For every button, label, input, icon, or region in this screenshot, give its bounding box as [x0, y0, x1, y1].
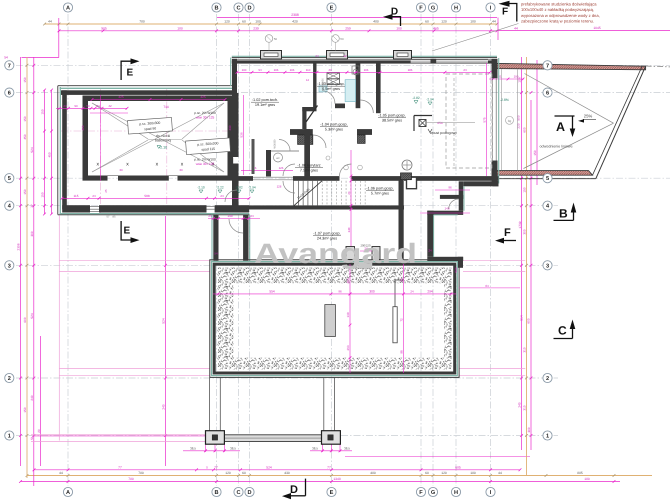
svg-text:450: 450 — [48, 152, 52, 157]
svg-text:B: B — [214, 490, 218, 496]
svg-text:38.5: 38.5 — [312, 447, 318, 451]
svg-text:780: 780 — [139, 20, 145, 24]
svg-text:77: 77 — [118, 466, 122, 470]
svg-text:300: 300 — [30, 231, 34, 236]
svg-text:300: 300 — [369, 290, 375, 294]
svg-text:basenowej: basenowej — [155, 139, 171, 143]
svg-text:885: 885 — [577, 471, 583, 475]
svg-text:480: 480 — [370, 471, 376, 475]
svg-text:94: 94 — [258, 68, 262, 72]
svg-text:180: 180 — [177, 26, 183, 30]
svg-text:24: 24 — [315, 54, 319, 58]
svg-text:425: 425 — [200, 95, 206, 99]
svg-text:1739: 1739 — [518, 221, 522, 228]
svg-text:-2.94: -2.94 — [248, 186, 255, 190]
svg-text:100: 100 — [514, 75, 519, 79]
svg-text:A: A — [66, 6, 70, 12]
svg-text:30: 30 — [119, 168, 123, 172]
svg-text:60: 60 — [242, 471, 246, 475]
svg-text:150: 150 — [23, 407, 27, 412]
svg-text:106: 106 — [364, 68, 369, 72]
svg-text:44: 44 — [59, 471, 63, 475]
svg-text:60: 60 — [425, 20, 429, 24]
svg-text:100: 100 — [242, 68, 247, 72]
svg-text:50: 50 — [340, 37, 344, 41]
svg-text:12: 12 — [306, 78, 310, 82]
svg-text:420: 420 — [81, 125, 85, 130]
svg-text:524: 524 — [30, 147, 34, 152]
svg-text:554: 554 — [269, 290, 275, 294]
svg-text:534: 534 — [454, 267, 458, 272]
svg-text:106: 106 — [290, 68, 295, 72]
svg-text:220: 220 — [517, 123, 521, 128]
svg-text:2308: 2308 — [291, 13, 299, 17]
svg-text:1: 1 — [546, 434, 549, 440]
svg-text:E: E — [127, 68, 134, 79]
svg-text:F: F — [419, 490, 423, 496]
svg-text:100: 100 — [396, 26, 402, 30]
svg-text:H: H — [454, 6, 458, 12]
svg-text:64: 64 — [485, 284, 489, 288]
svg-text:430: 430 — [284, 471, 290, 475]
svg-text:26: 26 — [347, 191, 351, 195]
svg-text:-2.82: -2.82 — [235, 186, 242, 190]
svg-text:24: 24 — [220, 194, 224, 198]
svg-text:180: 180 — [470, 471, 476, 475]
svg-text:240: 240 — [162, 404, 166, 409]
svg-text:120: 120 — [224, 20, 230, 24]
svg-text:24: 24 — [250, 214, 254, 218]
svg-text:-1.04 pom.gosp.: -1.04 pom.gosp. — [320, 122, 347, 126]
svg-text:38.5: 38.5 — [230, 447, 236, 451]
svg-text:150: 150 — [41, 109, 45, 114]
svg-text:2: 2 — [8, 376, 11, 382]
svg-text:98: 98 — [400, 350, 404, 354]
svg-text:wsie 30 i 125: wsie 30 i 125 — [196, 116, 215, 120]
svg-text:96: 96 — [338, 290, 342, 294]
svg-text:E: E — [330, 490, 334, 496]
svg-text:5: 5 — [8, 176, 11, 182]
svg-text:5: 5 — [546, 176, 549, 182]
svg-text:239: 239 — [253, 26, 259, 30]
svg-text:24: 24 — [428, 249, 432, 253]
svg-text:E: E — [330, 6, 334, 12]
svg-text:294: 294 — [427, 290, 433, 294]
svg-text:60: 60 — [242, 20, 246, 24]
svg-text:6: 6 — [546, 91, 549, 97]
svg-text:C: C — [236, 490, 240, 496]
svg-text:654: 654 — [437, 121, 442, 125]
svg-text:W30/30: W30/30 — [274, 139, 277, 148]
svg-text:110: 110 — [306, 68, 311, 72]
svg-text:150: 150 — [533, 150, 537, 155]
svg-text:F: F — [502, 7, 508, 18]
svg-text:500: 500 — [517, 115, 521, 120]
svg-text:128: 128 — [277, 185, 282, 189]
svg-text:-1.05 pom.gosp.: -1.05 pom.gosp. — [378, 114, 405, 118]
svg-text:310: 310 — [523, 347, 527, 352]
svg-text:54: 54 — [4, 56, 8, 60]
svg-text:40: 40 — [328, 68, 332, 72]
svg-text:wc: wc — [276, 156, 280, 160]
svg-text:-1.07 pom.gosp.: -1.07 pom.gosp. — [313, 232, 340, 236]
svg-text:-2.82: -2.82 — [412, 96, 419, 100]
svg-text:-2.10: -2.10 — [197, 186, 204, 190]
svg-text:126: 126 — [279, 166, 284, 170]
svg-text:780: 780 — [138, 471, 144, 475]
svg-text:514: 514 — [520, 315, 524, 320]
svg-text:77: 77 — [30, 204, 34, 208]
svg-text:240: 240 — [347, 227, 351, 232]
svg-text:spad 90: spad 90 — [144, 126, 156, 131]
svg-text:3: 3 — [8, 263, 11, 269]
svg-text:7: 7 — [8, 63, 11, 69]
svg-text:3: 3 — [546, 263, 549, 269]
svg-text:600: 600 — [527, 318, 531, 323]
svg-text:19.1m² gres: 19.1m² gres — [255, 103, 275, 107]
svg-text:G: G — [431, 490, 435, 496]
svg-text:D: D — [247, 6, 251, 12]
svg-text:44: 44 — [498, 471, 502, 475]
svg-text:H: H — [454, 490, 458, 496]
svg-text:524: 524 — [30, 313, 34, 318]
svg-text:600: 600 — [523, 127, 527, 132]
svg-text:D: D — [391, 7, 398, 18]
svg-text:Avangard: Avangard — [254, 238, 417, 269]
svg-text:1348: 1348 — [333, 477, 341, 481]
svg-text:480: 480 — [373, 20, 379, 24]
svg-text:wsie 30 i 125: wsie 30 i 125 — [196, 162, 215, 166]
svg-text:120: 120 — [441, 471, 447, 475]
svg-text:263: 263 — [346, 345, 350, 350]
svg-text:300: 300 — [523, 229, 527, 234]
svg-text:5.3m² gres: 5.3m² gres — [325, 128, 343, 132]
svg-text:425: 425 — [118, 95, 124, 99]
svg-text:465: 465 — [433, 26, 439, 30]
svg-text:300: 300 — [527, 427, 531, 432]
svg-text:odwodnienie liniowe: odwodnienie liniowe — [540, 145, 573, 149]
svg-text:150: 150 — [23, 116, 27, 121]
svg-text:wyposażona w odprowadzenie wod: wyposażona w odprowadzenie wody z dna, — [521, 13, 600, 18]
svg-text:24: 24 — [463, 68, 467, 72]
svg-text:-1.02 pom.tech.: -1.02 pom.tech. — [252, 98, 278, 102]
svg-text:77: 77 — [327, 466, 331, 470]
svg-text:38.5: 38.5 — [344, 447, 350, 451]
svg-text:490: 490 — [228, 125, 232, 130]
svg-text:7: 7 — [546, 63, 549, 69]
svg-text:120: 120 — [441, 20, 447, 24]
svg-text:50: 50 — [274, 37, 278, 41]
svg-text:115: 115 — [74, 194, 79, 198]
svg-text:203: 203 — [346, 278, 350, 283]
svg-text:wpust podłogowy: wpust podłogowy — [430, 131, 457, 135]
svg-text:B: B — [214, 6, 218, 12]
svg-text:96: 96 — [448, 186, 452, 190]
svg-text:-1.06 pom.gosp.: -1.06 pom.gosp. — [366, 187, 393, 191]
svg-text:7.5m² gres: 7.5m² gres — [300, 169, 318, 173]
svg-text:bg: bg — [508, 119, 512, 123]
svg-text:240: 240 — [518, 402, 522, 407]
svg-text:420: 420 — [292, 20, 298, 24]
svg-text:140: 140 — [227, 214, 232, 218]
svg-text:-2.22: -2.22 — [216, 186, 223, 190]
svg-text:24: 24 — [208, 214, 212, 218]
svg-text:-2.8%: -2.8% — [500, 98, 509, 102]
svg-text:E: E — [124, 226, 131, 237]
svg-text:C: C — [236, 6, 240, 12]
svg-text:24: 24 — [63, 104, 67, 108]
svg-text:-2.94: -2.94 — [426, 98, 433, 102]
svg-text:1: 1 — [8, 434, 11, 440]
svg-text:25: 25 — [104, 189, 108, 193]
svg-text:150: 150 — [23, 77, 27, 82]
svg-text:130: 130 — [346, 312, 350, 317]
svg-text:50: 50 — [86, 104, 90, 108]
svg-text:12: 12 — [343, 54, 347, 58]
svg-text:536: 536 — [240, 132, 244, 137]
svg-text:prefabrykowane studzienka dośw: prefabrykowane studzienka doświetlająca — [521, 2, 597, 7]
svg-text:44: 44 — [48, 20, 52, 24]
svg-text:106: 106 — [274, 68, 279, 72]
svg-text:24: 24 — [410, 290, 414, 294]
svg-text:1045: 1045 — [593, 26, 601, 30]
svg-text:186: 186 — [408, 68, 413, 72]
svg-text:30: 30 — [179, 168, 183, 172]
svg-text:2308: 2308 — [17, 243, 21, 250]
svg-text:44: 44 — [492, 20, 496, 24]
svg-text:72: 72 — [400, 318, 404, 322]
svg-text:zabezpieczone kratą w poziomie: zabezpieczone kratą w poziomie terenu. — [521, 18, 594, 23]
svg-text:90: 90 — [74, 104, 78, 108]
svg-text:150: 150 — [23, 189, 27, 194]
svg-text:714: 714 — [163, 105, 169, 109]
svg-text:180: 180 — [470, 20, 476, 24]
svg-text:G: G — [431, 6, 435, 12]
svg-text:5.7m² gres: 5.7m² gres — [371, 192, 389, 196]
svg-text:54: 54 — [214, 252, 218, 256]
svg-text:60: 60 — [425, 471, 429, 475]
svg-text:B: B — [559, 207, 568, 221]
svg-text:24: 24 — [92, 194, 96, 198]
svg-text:685: 685 — [455, 466, 461, 470]
svg-text:2: 2 — [546, 376, 549, 382]
svg-text:259: 259 — [345, 26, 351, 30]
svg-text:600: 600 — [23, 317, 27, 322]
svg-text:310: 310 — [523, 405, 527, 410]
svg-text:240: 240 — [30, 395, 34, 400]
svg-text:120: 120 — [225, 471, 231, 475]
svg-text:D: D — [247, 490, 251, 496]
svg-text:F: F — [419, 6, 423, 12]
svg-text:p.sc. 2% W100: p.sc. 2% W100 — [194, 111, 216, 115]
svg-text:A: A — [66, 490, 70, 496]
svg-text:6: 6 — [8, 91, 11, 97]
svg-text:42: 42 — [108, 104, 112, 108]
svg-text:180: 180 — [584, 477, 590, 481]
svg-text:780: 780 — [128, 477, 134, 481]
svg-text:WM 50/50: WM 50/50 — [322, 78, 325, 90]
svg-text:-1.00 korytarz: -1.00 korytarz — [297, 164, 320, 168]
svg-text:150: 150 — [41, 192, 45, 197]
svg-text:100x100x40 z nakładką podwyższ: 100x100x40 z nakładką podwyższającą, — [521, 7, 594, 12]
svg-text:dn. niecki: dn. niecki — [156, 134, 171, 138]
svg-text:44: 44 — [514, 26, 518, 30]
svg-text:20: 20 — [37, 429, 41, 433]
svg-text:C: C — [558, 324, 567, 338]
svg-text:24: 24 — [96, 104, 100, 108]
svg-text:77: 77 — [214, 466, 218, 470]
svg-text:450: 450 — [23, 134, 27, 139]
svg-text:905: 905 — [101, 26, 107, 30]
svg-text:38.5m² gres: 38.5m² gres — [382, 119, 402, 123]
svg-text:524: 524 — [162, 318, 166, 323]
svg-text:F: F — [504, 227, 511, 239]
svg-text:p.sc. 2% W100: p.sc. 2% W100 — [194, 158, 216, 162]
svg-text:A: A — [556, 120, 565, 134]
svg-text:51: 51 — [30, 436, 34, 440]
svg-text:524: 524 — [266, 466, 272, 470]
svg-text:575: 575 — [483, 117, 487, 122]
svg-text:100: 100 — [255, 20, 261, 24]
svg-text:38.5: 38.5 — [190, 447, 196, 451]
svg-text:588: 588 — [144, 194, 149, 198]
svg-text:D: D — [290, 484, 298, 496]
svg-text:25%: 25% — [584, 113, 593, 118]
svg-text:90: 90 — [400, 278, 404, 282]
svg-text:150: 150 — [523, 187, 527, 192]
